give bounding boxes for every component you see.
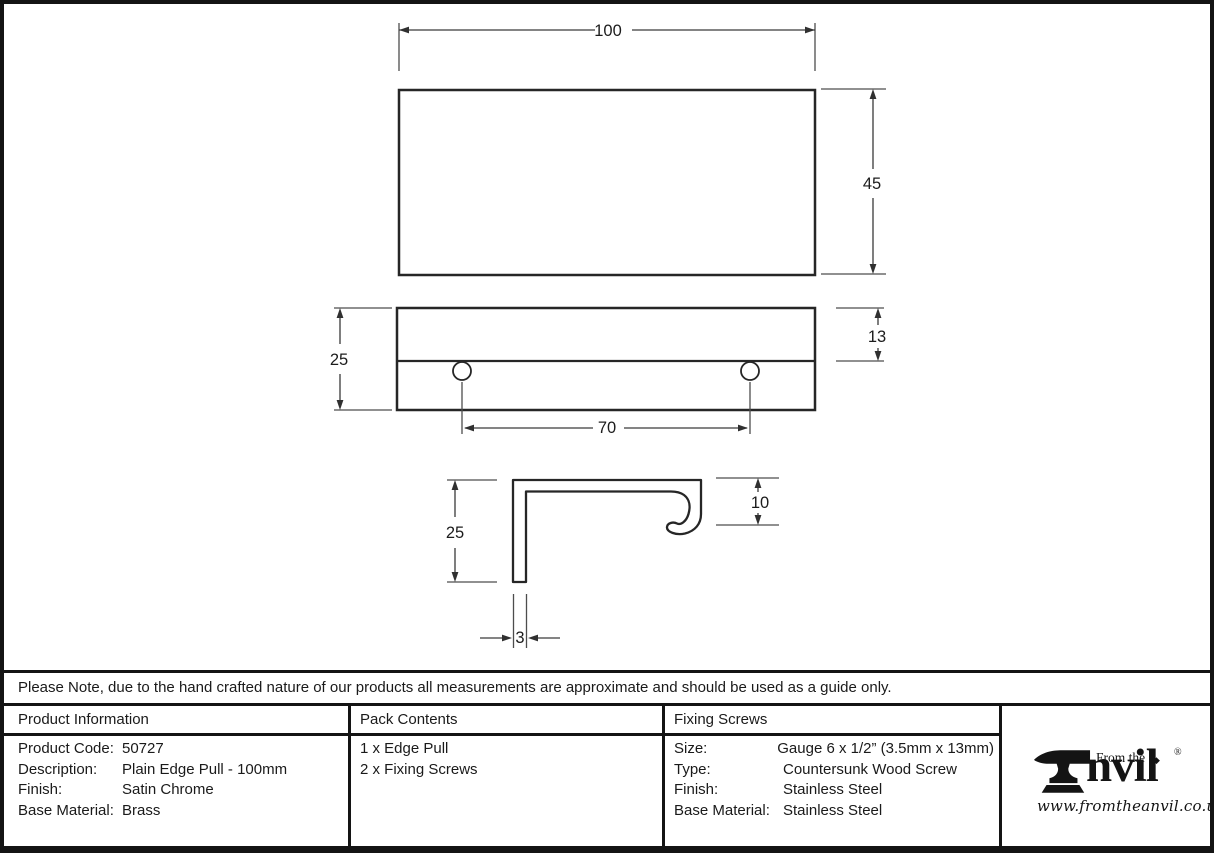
brand-website: www.fromtheanvil.co.uk bbox=[1037, 797, 1214, 815]
column-divider-2 bbox=[662, 706, 665, 846]
dim-label-hole-spacing: 70 bbox=[598, 419, 616, 437]
dimension-profile-lip: 10 bbox=[716, 478, 779, 525]
product-code-label: Product Code: bbox=[18, 739, 122, 760]
description-label: Description: bbox=[18, 760, 122, 781]
product-information-header: Product Information bbox=[18, 711, 149, 728]
dimension-profile-depth: 25 bbox=[446, 480, 497, 582]
description-row: Description: Plain Edge Pull - 100mm bbox=[18, 760, 343, 781]
base-material-row: Base Material: Brass bbox=[18, 801, 343, 822]
fixing-screws-header: Fixing Screws bbox=[674, 711, 767, 728]
product-information-body: Product Code: 50727 Description: Plain E… bbox=[18, 739, 343, 822]
screw-size-label: Size: bbox=[674, 739, 777, 760]
screw-type-value: Countersunk Wood Screw bbox=[783, 760, 957, 781]
registered-mark: ® bbox=[1174, 747, 1182, 758]
pack-item-2: 2 x Fixing Screws bbox=[360, 760, 655, 781]
pack-contents-body: 1 x Edge Pull 2 x Fixing Screws bbox=[360, 739, 655, 780]
screw-finish-label: Finish: bbox=[674, 780, 783, 801]
finish-row: Finish: Satin Chrome bbox=[18, 780, 343, 801]
finish-value: Satin Chrome bbox=[122, 780, 214, 801]
profile-view bbox=[513, 480, 701, 582]
dim-label-side-height: 25 bbox=[330, 351, 348, 369]
screw-finish-value: Stainless Steel bbox=[783, 780, 882, 801]
dim-label-profile-thickness: 3 bbox=[515, 629, 524, 647]
dimension-front-width: 100 bbox=[399, 22, 815, 71]
screw-type-label: Type: bbox=[674, 760, 783, 781]
dim-label-plate-offset: 13 bbox=[868, 328, 886, 346]
dim-label-front-height: 45 bbox=[863, 175, 881, 193]
screw-base-material-label: Base Material: bbox=[674, 801, 783, 822]
product-code-value: 50727 bbox=[122, 739, 164, 760]
screw-size-row: Size: Gauge 6 x 1/2” (3.5mm x 13mm) bbox=[674, 739, 994, 760]
brand-logo: From the ◆ ® nvil www.fromtheanvil.co.uk bbox=[1002, 706, 1208, 846]
front-view bbox=[399, 90, 815, 275]
screw-base-material-value: Stainless Steel bbox=[783, 801, 882, 822]
screw-base-material-row: Base Material: Stainless Steel bbox=[674, 801, 994, 822]
technical-drawing: 100 45 25 13 70 bbox=[0, 0, 1214, 665]
dim-label-profile-depth: 25 bbox=[446, 524, 464, 542]
finish-label: Finish: bbox=[18, 780, 122, 801]
base-material-value: Brass bbox=[122, 801, 160, 822]
measurement-note: Please Note, due to the hand crafted nat… bbox=[18, 679, 892, 696]
screw-hole-right bbox=[741, 362, 759, 380]
screw-type-row: Type: Countersunk Wood Screw bbox=[674, 760, 994, 781]
fixing-screws-body: Size: Gauge 6 x 1/2” (3.5mm x 13mm) Type… bbox=[674, 739, 994, 822]
base-material-label: Base Material: bbox=[18, 801, 122, 822]
column-divider-1 bbox=[348, 706, 351, 846]
header-row-bottom-border bbox=[4, 733, 1002, 736]
pack-item-1: 1 x Edge Pull bbox=[360, 739, 655, 760]
dim-label-front-width: 100 bbox=[594, 22, 622, 40]
dimension-front-height: 45 bbox=[821, 89, 886, 274]
dim-label-profile-lip: 10 bbox=[751, 494, 769, 512]
note-row-top-border bbox=[4, 670, 1210, 673]
brand-name-text: nvil bbox=[1086, 743, 1158, 790]
pack-contents-header: Pack Contents bbox=[360, 711, 458, 728]
side-view bbox=[397, 308, 815, 410]
screw-size-value: Gauge 6 x 1/2” (3.5mm x 13mm) bbox=[777, 739, 994, 760]
screw-hole-left bbox=[453, 362, 471, 380]
dimension-side-height: 25 bbox=[330, 308, 392, 410]
dimension-plate-offset: 13 bbox=[836, 308, 886, 361]
dimension-profile-thickness: 3 bbox=[480, 594, 560, 648]
anvil-icon bbox=[1033, 747, 1091, 794]
description-value: Plain Edge Pull - 100mm bbox=[122, 760, 287, 781]
screw-finish-row: Finish: Stainless Steel bbox=[674, 780, 994, 801]
product-code-row: Product Code: 50727 bbox=[18, 739, 343, 760]
